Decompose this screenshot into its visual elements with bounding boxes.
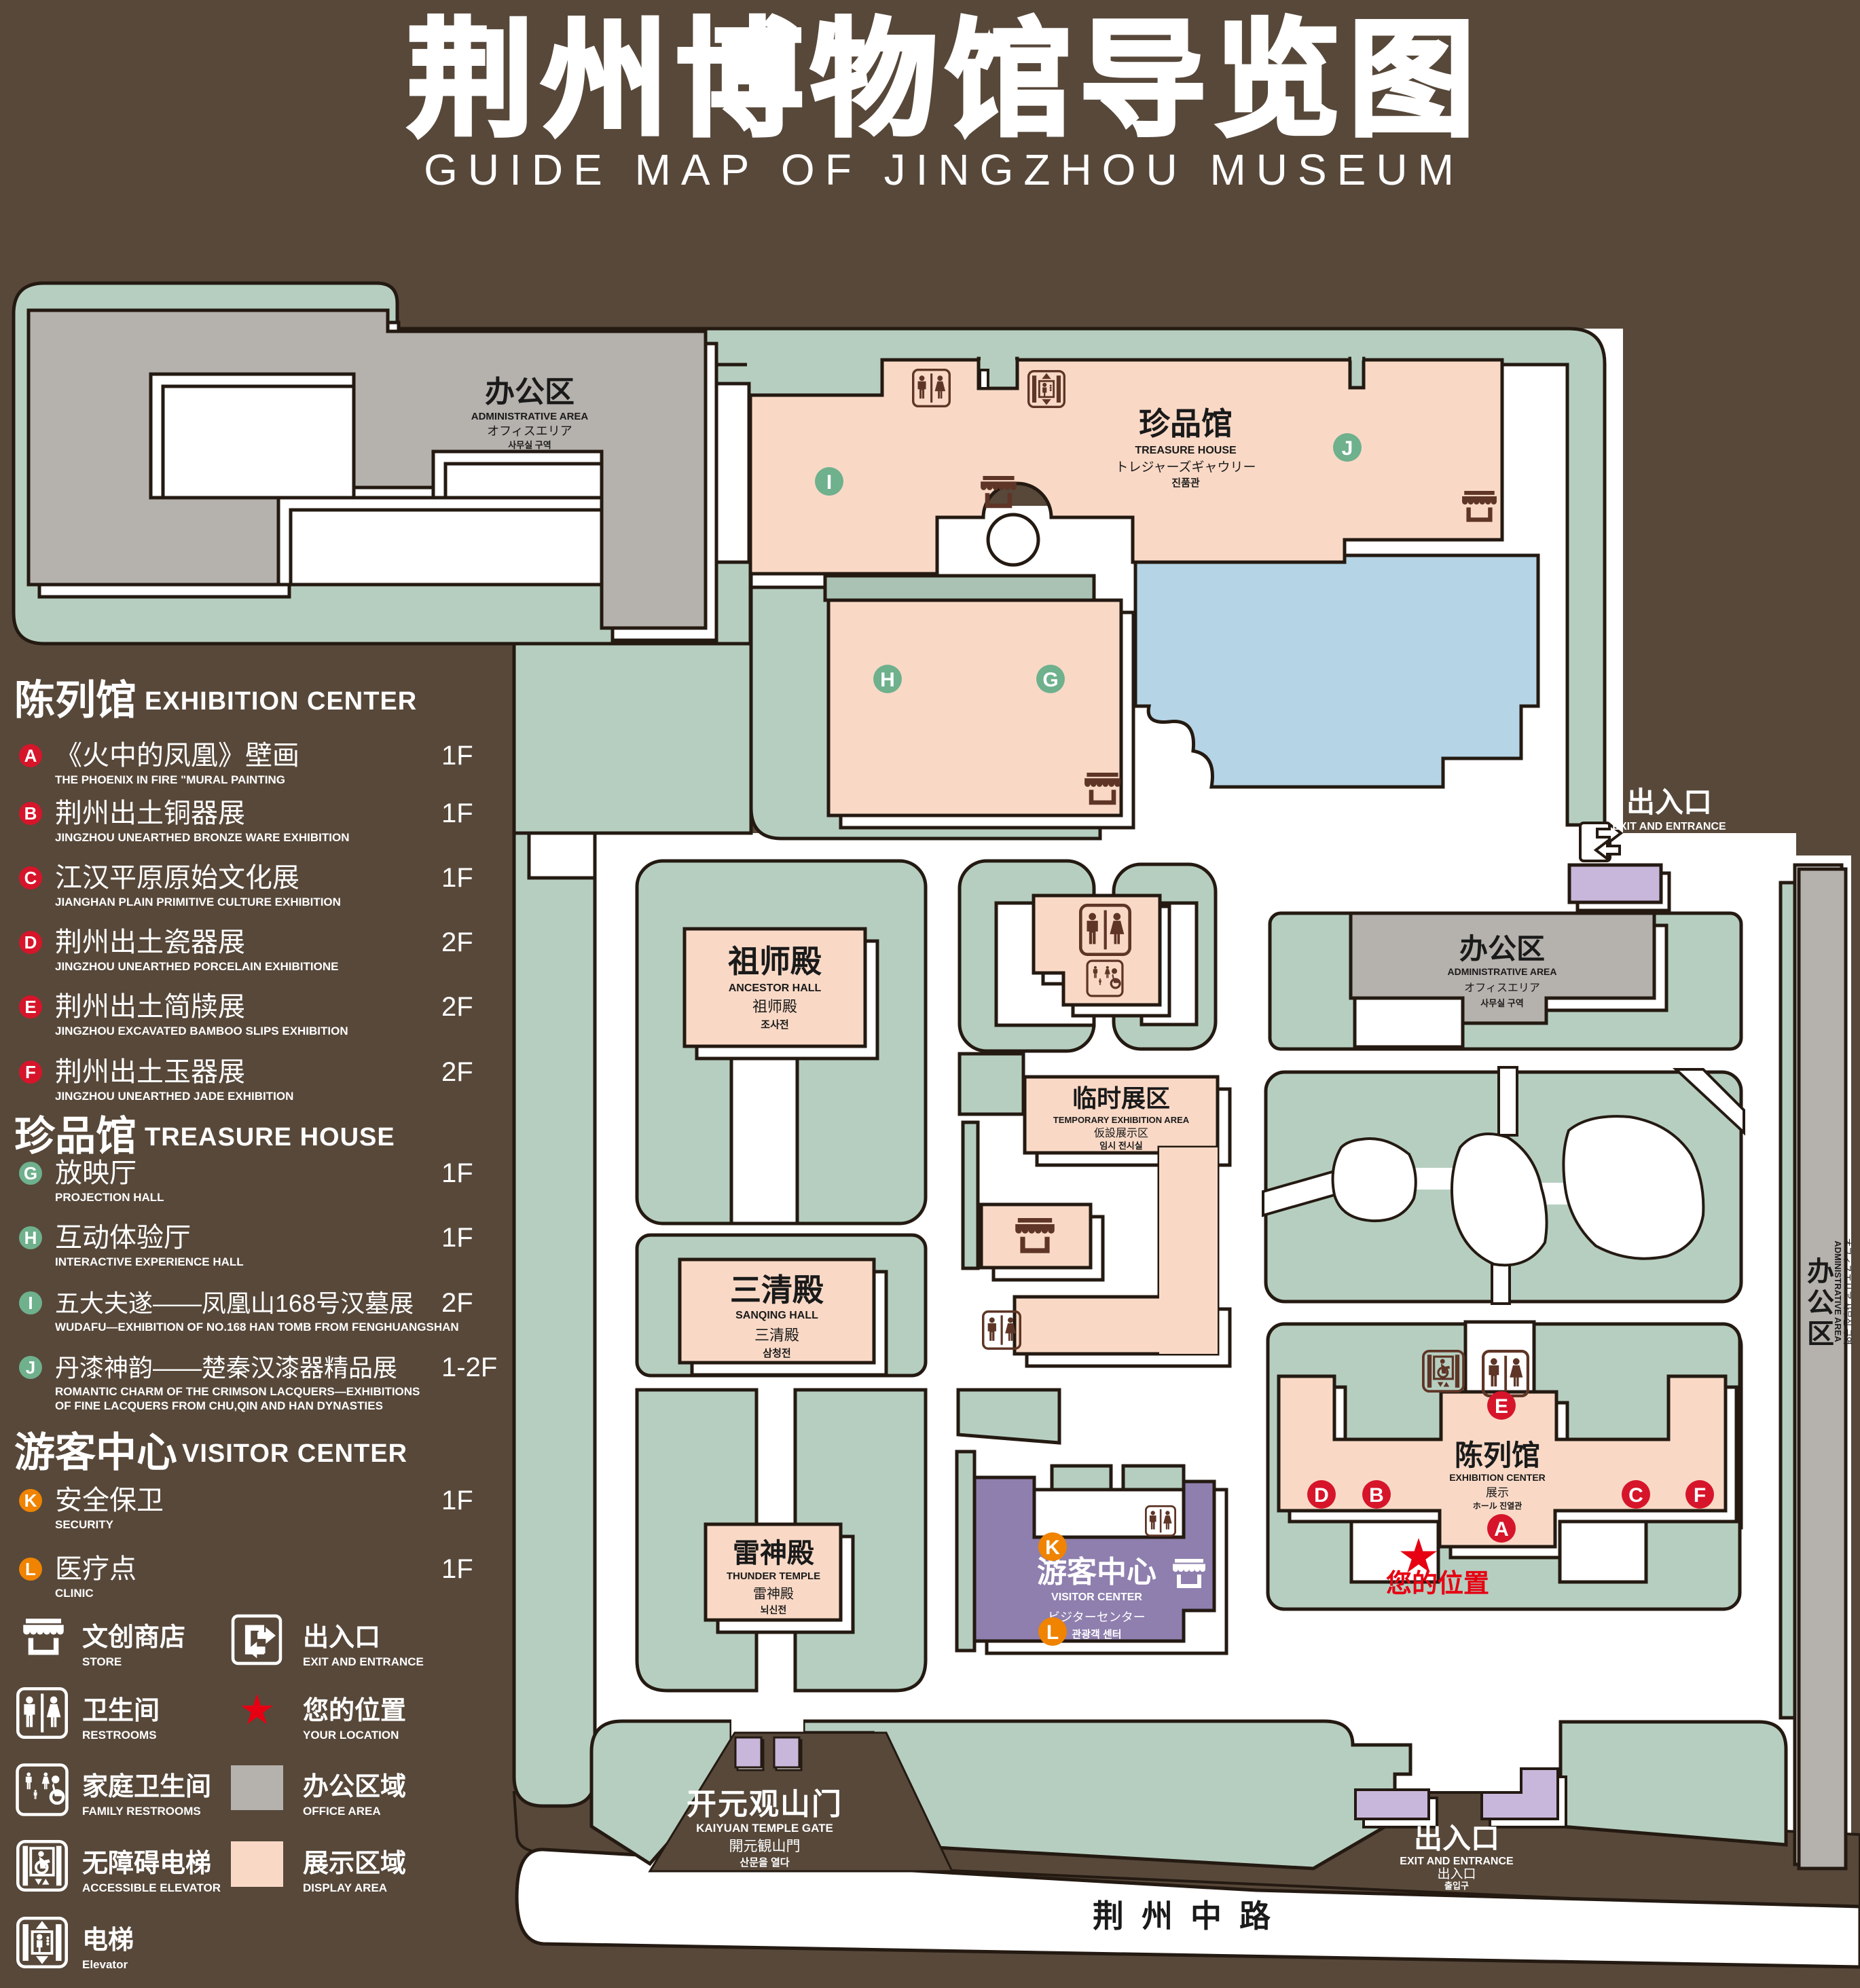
svg-text:ROMANTIC CHARM OF THE CRIMSON: ROMANTIC CHARM OF THE CRIMSON LACQUERS—E…: [55, 1385, 420, 1398]
svg-text:A: A: [24, 745, 37, 766]
svg-text:出入口: 出入口: [1649, 835, 1690, 851]
svg-text:丹漆神韵——楚秦汉漆器精品展: 丹漆神韵——楚秦汉漆器精品展: [55, 1354, 397, 1382]
svg-text:区: 区: [1807, 1319, 1834, 1349]
svg-text:SECURITY: SECURITY: [55, 1518, 114, 1531]
svg-text:オフィスエリア: オフィスエリア: [1464, 982, 1540, 994]
svg-text:출입구: 출입구: [1444, 1881, 1469, 1891]
svg-text:陈列馆: 陈列馆: [1455, 1439, 1540, 1471]
svg-text:삼청전: 삼청전: [763, 1348, 790, 1359]
svg-text:1F: 1F: [441, 798, 473, 828]
svg-text:雷神殿: 雷神殿: [733, 1539, 814, 1568]
svg-text:1F: 1F: [441, 1554, 473, 1584]
svg-text:JIANGHAN PLAIN PRIMITIVE CULTU: JIANGHAN PLAIN PRIMITIVE CULTURE EXHIBIT…: [55, 896, 341, 908]
svg-text:EXIT AND ENTRANCE: EXIT AND ENTRANCE: [303, 1655, 424, 1668]
svg-text:安全保卫: 安全保卫: [55, 1486, 164, 1515]
svg-text:荆州中路: 荆州中路: [1093, 1898, 1288, 1934]
svg-text:VISITOR CENTER: VISITOR CENTER: [1051, 1591, 1142, 1603]
svg-text:游客中心: 游客中心: [14, 1430, 177, 1475]
svg-text:THE PHOENIX IN FIRE "MURAL PAI: THE PHOENIX IN FIRE "MURAL PAINTING: [55, 773, 285, 786]
svg-text:文创商店: 文创商店: [82, 1623, 185, 1652]
svg-text:荆州出土玉器展: 荆州出土玉器展: [55, 1057, 245, 1087]
svg-text:出入口: 出入口: [1626, 786, 1712, 818]
svg-text:E: E: [24, 997, 36, 1017]
svg-text:ホール 진열관: ホール 진열관: [1473, 1501, 1522, 1511]
svg-text:荆州出土瓷器展: 荆州出土瓷器展: [55, 927, 245, 957]
svg-text:ADMINISTRATIVE AREA: ADMINISTRATIVE AREA: [1448, 966, 1557, 977]
svg-text:K: K: [1045, 1536, 1060, 1559]
svg-text:珍品馆: 珍品馆: [14, 1113, 136, 1159]
svg-text:RESTROOMS: RESTROOMS: [82, 1729, 157, 1742]
svg-text:放映厅: 放映厅: [55, 1158, 136, 1188]
svg-text:EXHIBITION CENTER: EXHIBITION CENTER: [1449, 1472, 1546, 1483]
svg-text:D: D: [24, 932, 37, 953]
svg-text:卫生间: 卫生间: [82, 1697, 160, 1725]
svg-text:JINGZHOU UNEARTHED BRONZE WARE: JINGZHOU UNEARTHED BRONZE WARE EXHIBITIO…: [55, 831, 350, 844]
svg-text:조사전: 조사전: [761, 1019, 788, 1031]
svg-text:L: L: [25, 1559, 36, 1579]
svg-text:출입구: 출입구: [1656, 853, 1683, 864]
svg-text:互动体验厅: 互动体验厅: [55, 1223, 191, 1253]
svg-text:无障碍电梯: 无障碍电梯: [82, 1849, 211, 1878]
svg-text:L: L: [1046, 1621, 1059, 1644]
svg-text:展示: 展示: [1486, 1486, 1509, 1499]
svg-text:B: B: [24, 803, 37, 824]
svg-text:仮設展示区: 仮設展示区: [1094, 1127, 1148, 1139]
svg-text:2F: 2F: [441, 1057, 473, 1087]
svg-text:Elevator: Elevator: [82, 1958, 128, 1971]
svg-text:三清殿: 三清殿: [754, 1327, 799, 1344]
svg-text:EXIT AND ENTRANCE: EXIT AND ENTRANCE: [1612, 821, 1726, 832]
svg-text:江汉平原原始文化展: 江汉平原原始文化展: [55, 863, 299, 893]
svg-text:JINGZHOU UNEARTHED PORCELAIN E: JINGZHOU UNEARTHED PORCELAIN EXHIBITIONE: [55, 960, 338, 973]
svg-text:THUNDER TEMPLE: THUNDER TEMPLE: [727, 1570, 820, 1582]
svg-text:산문을 열다: 산문을 열다: [740, 1857, 789, 1869]
svg-text:I: I: [28, 1293, 33, 1313]
svg-text:珍品馆: 珍品馆: [1139, 406, 1233, 441]
svg-text:出入口: 出入口: [1437, 1866, 1476, 1881]
svg-text:F: F: [25, 1062, 36, 1082]
svg-text:1F: 1F: [441, 1223, 473, 1253]
svg-text:G: G: [24, 1163, 37, 1183]
svg-text:CLINIC: CLINIC: [55, 1587, 94, 1600]
svg-text:荆州博物馆导览图: 荆州博物馆导览图: [407, 10, 1483, 151]
svg-text:GUIDE MAP OF JINGZHOU MUSEUM: GUIDE MAP OF JINGZHOU MUSEUM: [424, 145, 1464, 194]
svg-text:사무실 구역: 사무실 구역: [508, 440, 551, 450]
svg-text:荆州出土铜器展: 荆州出土铜器展: [55, 798, 245, 828]
svg-text:A: A: [1494, 1518, 1509, 1541]
svg-text:G: G: [1042, 669, 1058, 691]
svg-text:开元观山门: 开元观山门: [687, 1788, 843, 1821]
svg-text:出入口: 出入口: [303, 1623, 380, 1652]
svg-text:開元観山門: 開元観山門: [729, 1839, 801, 1854]
svg-text:三清殿: 三清殿: [730, 1272, 824, 1308]
svg-text:五大夫遂——凤凰山168号汉墓展: 五大夫遂——凤凰山168号汉墓展: [55, 1289, 414, 1317]
svg-text:뇌신전: 뇌신전: [761, 1604, 787, 1615]
svg-text:1-2F: 1-2F: [441, 1352, 497, 1382]
svg-text:2F: 2F: [441, 992, 473, 1022]
svg-text:F: F: [1694, 1484, 1706, 1507]
svg-text:VISITOR CENTER: VISITOR CENTER: [182, 1439, 407, 1468]
svg-text:DISPLAY AREA: DISPLAY AREA: [303, 1881, 387, 1894]
svg-text:ANCESTOR HALL: ANCESTOR HALL: [729, 982, 822, 994]
svg-text:家庭卫生间: 家庭卫生间: [82, 1772, 211, 1801]
svg-text:C: C: [24, 868, 37, 888]
svg-text:C: C: [1628, 1484, 1643, 1507]
svg-text:E: E: [1495, 1395, 1508, 1418]
svg-text:ADMINISTRATIVE AREA: ADMINISTRATIVE AREA: [471, 411, 589, 422]
svg-text:임시 전시실: 임시 전시실: [1099, 1141, 1142, 1151]
svg-text:オフィスエリア 사무실 구역: オフィスエリア 사무실 구역: [1842, 1238, 1853, 1345]
svg-text:H: H: [24, 1228, 37, 1248]
svg-text:FAMILY RESTROOMS: FAMILY RESTROOMS: [82, 1805, 201, 1818]
svg-text:办公区: 办公区: [1459, 933, 1545, 965]
svg-text:您的位置: 您的位置: [1386, 1570, 1489, 1598]
svg-text:JINGZHOU EXCAVATED BAMBOO SLIP: JINGZHOU EXCAVATED BAMBOO SLIPS EXHIBITI…: [55, 1025, 348, 1037]
svg-text:D: D: [1314, 1484, 1329, 1507]
svg-text:YOUR LOCATION: YOUR LOCATION: [303, 1729, 399, 1742]
svg-text:OF FINE LACQUERS FROM CHU,QIN: OF FINE LACQUERS FROM CHU,QIN AND HAN DY…: [55, 1399, 383, 1412]
svg-text:TREASURE HOUSE: TREASURE HOUSE: [145, 1123, 395, 1152]
svg-text:2F: 2F: [441, 1288, 473, 1318]
svg-text:ADMINISTRATIVE AREA: ADMINISTRATIVE AREA: [1833, 1240, 1843, 1342]
svg-text:临时展区: 临时展区: [1072, 1084, 1170, 1112]
svg-text:办: 办: [1807, 1257, 1834, 1287]
svg-text:医疗点: 医疗点: [55, 1554, 136, 1584]
svg-text:PROJECTION HALL: PROJECTION HALL: [55, 1191, 164, 1204]
svg-text:您的位置: 您的位置: [303, 1697, 406, 1725]
svg-text:B: B: [1369, 1484, 1384, 1507]
svg-text:EXHIBITION CENTER: EXHIBITION CENTER: [145, 687, 417, 716]
svg-text:电梯: 电梯: [82, 1926, 134, 1955]
svg-text:办公区: 办公区: [485, 375, 575, 409]
svg-text:EXIT AND ENTRANCE: EXIT AND ENTRANCE: [1400, 1856, 1514, 1867]
svg-text:SANQING HALL: SANQING HALL: [735, 1310, 818, 1321]
svg-text:TREASURE HOUSE: TREASURE HOUSE: [1135, 445, 1237, 456]
svg-text:1F: 1F: [441, 1158, 473, 1188]
svg-text:TEMPORARY EXHIBITION AREA: TEMPORARY EXHIBITION AREA: [1053, 1115, 1190, 1125]
svg-text:INTERACTIVE EXPERIENCE HALL: INTERACTIVE EXPERIENCE HALL: [55, 1255, 244, 1268]
svg-text:陈列馆: 陈列馆: [14, 678, 136, 723]
svg-text:진품관: 진품관: [1171, 477, 1200, 489]
svg-text:KAIYUAN TEMPLE GATE: KAIYUAN TEMPLE GATE: [696, 1822, 833, 1835]
svg-text:I: I: [826, 471, 832, 494]
svg-text:祖师殿: 祖师殿: [752, 998, 797, 1015]
svg-text:雷神殿: 雷神殿: [753, 1586, 794, 1602]
svg-text:STORE: STORE: [82, 1655, 122, 1668]
svg-text:OFFICE AREA: OFFICE AREA: [303, 1805, 381, 1818]
svg-text:1F: 1F: [441, 1486, 473, 1515]
svg-text:J: J: [26, 1357, 35, 1378]
svg-text:K: K: [24, 1490, 37, 1511]
svg-text:2F: 2F: [441, 927, 473, 957]
svg-text:ACCESSIBLE ELEVATOR: ACCESSIBLE ELEVATOR: [82, 1881, 221, 1894]
svg-text:JINGZHOU UNEARTHED JADE EXHIBI: JINGZHOU UNEARTHED JADE EXHIBITION: [55, 1090, 293, 1103]
svg-text:展示区域: 展示区域: [303, 1849, 406, 1878]
svg-text:관광객 센터: 관광객 센터: [1072, 1628, 1121, 1640]
svg-text:出入口: 出入口: [1414, 1822, 1499, 1854]
svg-text:WUDAFU—EXHIBITION OF NO.168 HA: WUDAFU—EXHIBITION OF NO.168 HAN TOMB FRO…: [55, 1321, 459, 1333]
svg-text:荆州出土简牍展: 荆州出土简牍展: [55, 992, 245, 1022]
svg-text:オフィスエリア: オフィスエリア: [487, 424, 572, 438]
svg-text:1F: 1F: [441, 863, 473, 893]
svg-text:祖师殿: 祖师殿: [728, 944, 822, 979]
svg-text:办公区域: 办公区域: [303, 1773, 406, 1801]
svg-text:公: 公: [1807, 1288, 1834, 1318]
svg-text:사무실 구역: 사무실 구역: [1480, 998, 1523, 1008]
svg-text:H: H: [880, 669, 895, 691]
svg-text:1F: 1F: [441, 741, 473, 771]
svg-text:J: J: [1342, 437, 1353, 460]
svg-text:トレジャーズギャウリー: トレジャーズギャウリー: [1115, 460, 1256, 475]
svg-text:《火中的凤凰》壁画: 《火中的凤凰》壁画: [55, 741, 299, 771]
